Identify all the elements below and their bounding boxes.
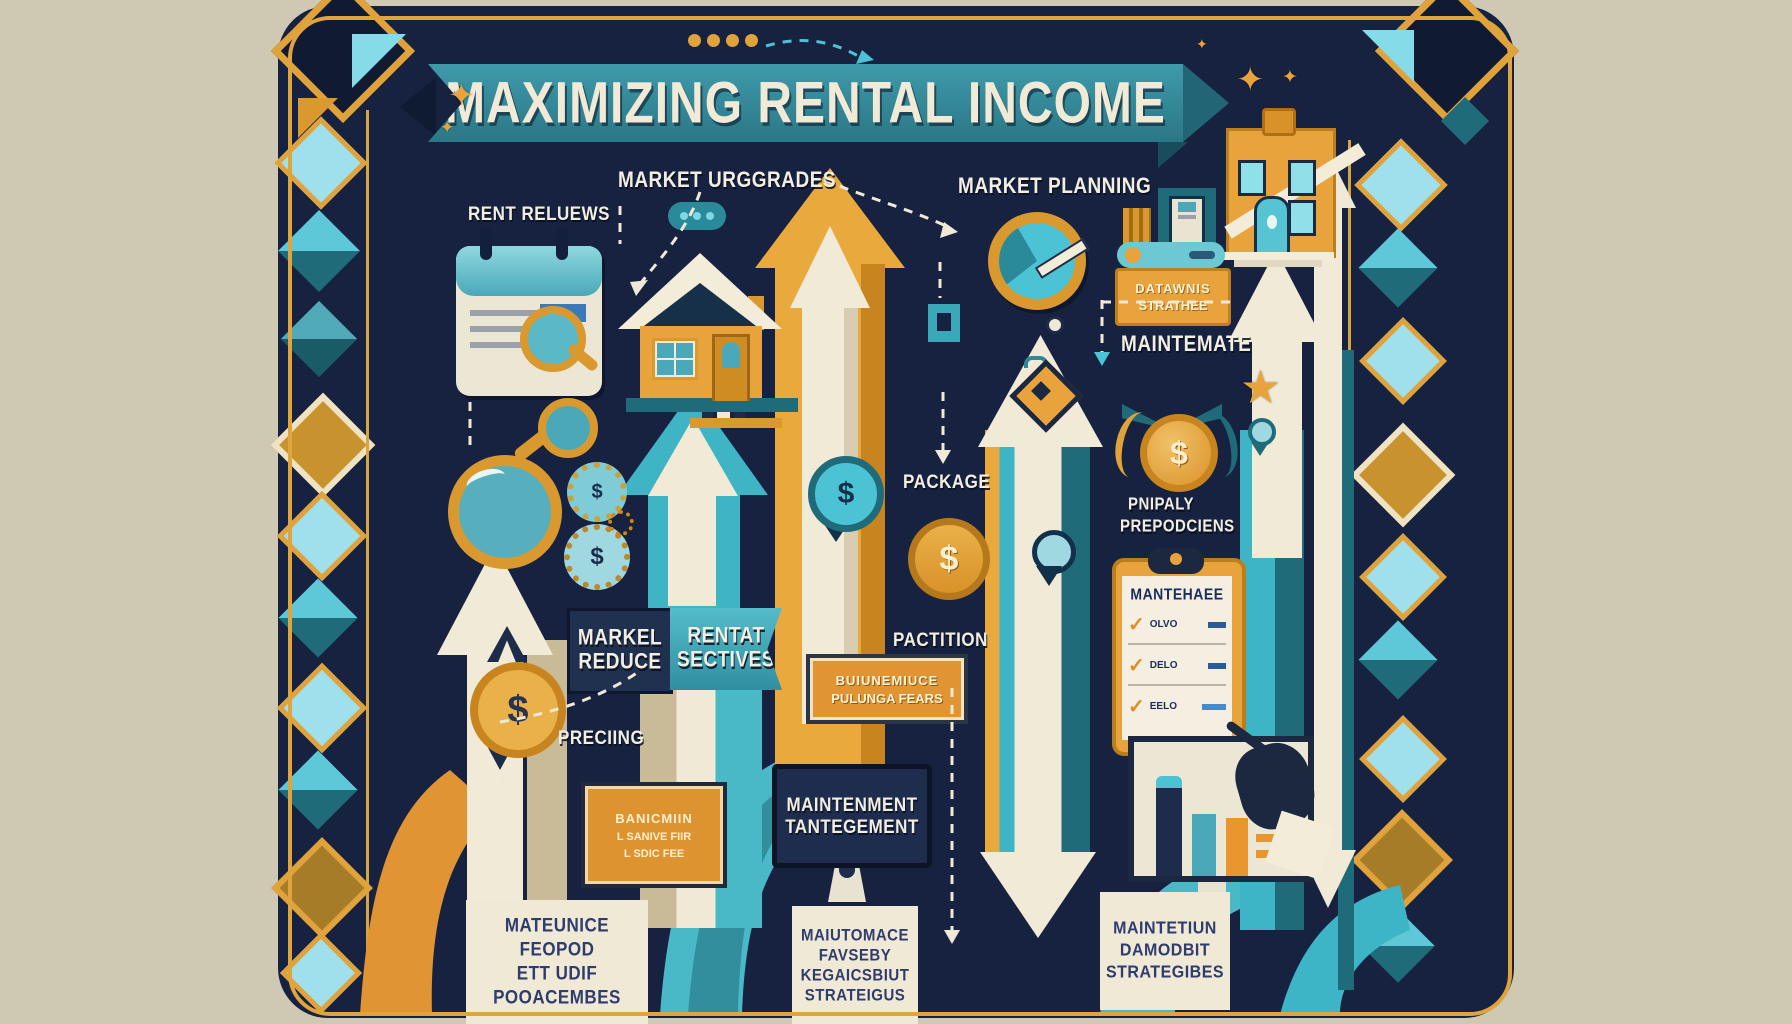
checklist-item: DELO (1150, 660, 1178, 671)
check-icon: ✓ (1128, 612, 1145, 637)
magnifier-icon (520, 306, 586, 372)
sparkle-icon: ✦ (1282, 66, 1298, 89)
bottom-left-line3: ETT UDIF (517, 963, 598, 985)
infographic-canvas: MAXIMIZING RENTAL INCOME ✦ ✦ ✦ ✦ ✦ RENT … (0, 0, 1792, 1024)
bar-dot (1125, 247, 1141, 263)
window-pane (657, 343, 674, 358)
shelf-icon (690, 418, 782, 428)
strategies-badge-line2: STRATHEE (1138, 298, 1207, 313)
market-reduce-line2: REDUCE (578, 650, 661, 675)
calendar-ring (480, 228, 492, 260)
checklist-item: OLVO (1150, 619, 1178, 630)
page-title: MAXIMIZING RENTAL INCOME (445, 69, 1166, 136)
row-bar (1208, 663, 1226, 669)
bar-navy (1156, 784, 1182, 876)
bottom-mid-box: MAIUTOMACE FAVSEBY KEGAICSBIUT STRATEIGU… (792, 906, 918, 1024)
pricing-label: PRECIING (558, 727, 644, 750)
house-window (1288, 160, 1316, 196)
dot-ornament (707, 34, 720, 47)
calendar-ring (556, 228, 568, 260)
service-fee-line2: L SANIVE FIIR (617, 831, 691, 843)
bottom-right-line2: DAMODBIT (1120, 941, 1210, 961)
maintenate-label: MAINTEMATE (1121, 332, 1251, 357)
sparkle-icon: ✦ (440, 118, 454, 138)
market-upgrades-label: MARKET URGGRADES (618, 168, 836, 193)
bottom-right-box: MAINTETIUN DAMODBIT STRATEGIBES (1100, 892, 1230, 1010)
rental-sectives-ribbon: RENTAT SECTIVES (670, 608, 782, 690)
block-notch (937, 313, 951, 331)
bottom-left-line2: FEOPOD (520, 939, 595, 961)
strategies-badge: DATAWNIS STRATHEE (1115, 268, 1231, 326)
pin-tail (1251, 442, 1269, 456)
package-fees-line1: BUIUNEMIUCE (836, 673, 939, 688)
tag-dot (693, 212, 701, 220)
maintenance-monitor-line1: MAINTENMENT (786, 794, 917, 817)
house-step (1234, 260, 1322, 267)
properly-label-1: PNIPALY (1128, 495, 1194, 515)
bottom-right-line1: MAINTETIUN (1113, 919, 1217, 939)
market-reduce-line1: MARKEL (578, 626, 662, 651)
pin-tail (1036, 566, 1062, 586)
house-window (1288, 200, 1316, 236)
check-icon: ✓ (1128, 653, 1145, 678)
dot-ornament (688, 34, 701, 47)
tag-icon (668, 202, 726, 230)
house-door (712, 334, 750, 401)
service-fee-line3: L SDIC FEE (624, 848, 684, 860)
checklist-row: ✓ DELO (1128, 653, 1226, 686)
bar-pill (1189, 251, 1215, 259)
bottom-left-line4: POOACEMBES (493, 987, 621, 1009)
door-knob (1267, 215, 1277, 229)
pactition-label: PACTITION (893, 629, 988, 652)
clipboard-paper: MANTEHAEE ✓ OLVO ✓ DELO ✓ EELO (1122, 576, 1232, 740)
border-line-left (366, 110, 369, 978)
bar-orange (1226, 818, 1248, 876)
package-fees-line2: PULUNGA FEARS (831, 691, 942, 706)
checklist-row: ✓ OLVO (1128, 612, 1226, 645)
ribbon-tail-left (400, 78, 436, 136)
house-door (1254, 196, 1290, 256)
window-pane (1178, 202, 1196, 212)
dollar-coin-icon: $ (908, 518, 990, 600)
bottom-left-line1: MATEUNICE (505, 915, 609, 937)
checklist-item: EELO (1150, 701, 1177, 712)
bar-teal (1192, 814, 1216, 876)
medal-dollar-icon: $ (1140, 414, 1218, 492)
package-label: PACKAGE (903, 471, 990, 494)
maintenance-monitor-line2: TANTEGEMENT (785, 816, 919, 839)
sparkle-icon: ✦ (448, 76, 475, 114)
magnifier-large-icon (448, 455, 562, 569)
checklist-title: MANTEHAEE (1124, 585, 1230, 603)
corner-triangle-topright (1362, 30, 1414, 82)
magnifier-small-icon (538, 398, 598, 458)
star-icon: ★ (1240, 360, 1281, 414)
rental-sectives-line1: RENTAT (687, 624, 764, 649)
check-icon: ✓ (1128, 694, 1145, 719)
dot-ornament (745, 34, 758, 47)
title-banner: MAXIMIZING RENTAL INCOME (428, 64, 1183, 142)
column-bands (985, 430, 1090, 860)
house-step (1222, 252, 1334, 260)
window-pane (657, 360, 674, 375)
bottom-mid-line3: KEGAICSBIUT (801, 965, 910, 984)
rent-reviews-label: RENT RELUEWS (468, 203, 610, 226)
market-reduce-box: MARKEL REDUCE (567, 608, 673, 694)
maintenance-monitor: MAINTENMENT TANTEGEMENT (772, 764, 932, 868)
sparkle-icon: ✦ (1196, 36, 1208, 53)
tag-dot (680, 212, 688, 220)
house-window (652, 338, 698, 380)
bottom-mid-line4: STRATEIGUS (805, 985, 906, 1004)
dollar-coin-icon: $ (470, 662, 566, 758)
service-fee-line1: BANICMIIN (615, 811, 693, 826)
window-pane (676, 360, 693, 375)
ribbon-fold-right (1158, 142, 1188, 168)
bottom-mid-line2: FAVSEBY (819, 945, 891, 964)
bottom-mid-line1: MAIUTOMACE (801, 925, 909, 944)
ribbon-tail-right (1183, 64, 1229, 142)
window-pane (676, 343, 693, 358)
door-window (722, 342, 740, 368)
ribbon-bar (1117, 242, 1225, 268)
clip-hole (1170, 553, 1182, 565)
calendar-header (456, 246, 602, 296)
bar-cap (1156, 776, 1182, 788)
clipboard-clip (1148, 548, 1204, 574)
service-fee-box: BANICMIIN L SANIVE FIIR L SDIC FEE (581, 782, 727, 888)
sparkle-icon: ✦ (1236, 60, 1265, 100)
package-fees-box: BUIUNEMIUCE PULUNGA FEARS (806, 654, 968, 724)
attic-window (1262, 108, 1296, 136)
white-inner-arrow-shaft (668, 494, 716, 606)
corner-triangle-topleft (352, 34, 406, 88)
bottom-right-line3: STRATEGIBES (1106, 963, 1224, 983)
row-bar (1208, 622, 1226, 628)
far-right-shaft (1314, 204, 1342, 854)
dot-ornament (726, 34, 739, 47)
rental-sectives-line2: SECTIVES (677, 648, 775, 673)
tag-dot (706, 212, 714, 220)
pie-dot (1046, 316, 1064, 334)
checklist-row: ✓ EELO (1128, 694, 1226, 719)
teal-block-icon (928, 304, 960, 342)
window-line (1178, 215, 1196, 219)
strategies-badge-line1: DATAWNIS (1135, 281, 1210, 296)
building-window (1169, 196, 1205, 246)
market-planning-label: MARKET PLANNING (958, 174, 1151, 199)
house-window (1238, 160, 1266, 196)
house-roof-inner (640, 283, 760, 329)
row-bar (1202, 704, 1226, 710)
teal-dollar-pin-icon: $ (808, 456, 884, 532)
gear-small-icon (608, 510, 634, 536)
properly-label-2: PREPODCIENS (1120, 517, 1235, 537)
bottom-left-box: MATEUNICE FEOPOD ETT UDIF POOACEMBES (466, 900, 648, 1024)
